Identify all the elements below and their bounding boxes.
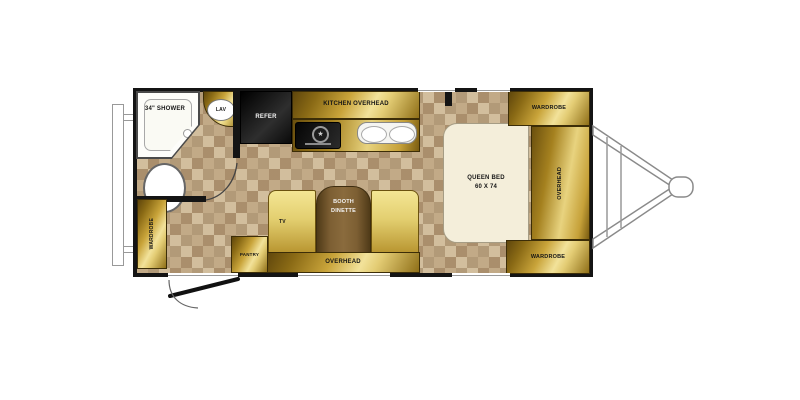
wardrobe-front-top-label: WARDROBE bbox=[532, 105, 566, 112]
hitch-rail-top bbox=[593, 126, 673, 186]
dinette-bench-left: TV bbox=[268, 190, 316, 254]
stove-cooktop: ★ bbox=[295, 122, 341, 149]
wardrobe-rear-label: WARDROBE bbox=[149, 218, 155, 249]
entry-door-panel bbox=[170, 279, 238, 296]
wardrobe-front-top: WARDROBE bbox=[508, 91, 590, 126]
window-bottom-2 bbox=[452, 273, 510, 277]
wardrobe-front-bottom-label: WARDROBE bbox=[531, 254, 565, 261]
lav-sink: LAV bbox=[207, 99, 235, 121]
rear-bumper bbox=[112, 104, 124, 266]
overhead-front: OVERHEAD bbox=[531, 126, 590, 240]
wardrobe-front-bottom: WARDROBE bbox=[506, 240, 590, 274]
overhead-dinette-label: OVERHEAD bbox=[325, 259, 361, 267]
window-top-2 bbox=[477, 88, 510, 92]
kitchen-overhead-cabinet: KITCHEN OVERHEAD bbox=[292, 91, 420, 119]
dinette-label-2: DINETTE bbox=[331, 208, 356, 215]
trailer-body: 34" SHOWER LAV WARDROBE REFER KITCHEN OV… bbox=[133, 88, 593, 277]
shower-stall: 34" SHOWER bbox=[136, 91, 200, 159]
dinette-table: BOOTH DINETTE bbox=[316, 186, 371, 254]
tv-label: TV bbox=[279, 219, 286, 225]
hitch-rail-bottom bbox=[593, 188, 673, 248]
overhead-dinette: OVERHEAD bbox=[266, 252, 420, 273]
entry-door-opening bbox=[168, 273, 238, 277]
window-top-1 bbox=[418, 88, 455, 92]
kitchen-sink bbox=[357, 122, 417, 144]
queen-bed-label: QUEEN BED bbox=[467, 175, 504, 183]
floorplan-canvas: 34" SHOWER LAV WARDROBE REFER KITCHEN OV… bbox=[0, 0, 800, 400]
refrigerator: REFER bbox=[240, 91, 292, 144]
dinette-bench-right bbox=[371, 190, 419, 254]
hitch-a-frame bbox=[591, 124, 696, 250]
refer-label: REFER bbox=[255, 114, 276, 122]
window-bottom-1 bbox=[298, 273, 390, 277]
dinette-label-1: BOOTH bbox=[333, 199, 354, 206]
lav-label: LAV bbox=[216, 107, 226, 113]
kitchen-overhead-label: KITCHEN OVERHEAD bbox=[323, 101, 389, 109]
pantry-label: PANTRY bbox=[240, 252, 259, 258]
shower-pan-outline: 34" SHOWER bbox=[138, 93, 198, 157]
stove-emblem-text bbox=[305, 143, 331, 145]
entry-door-swing-arc bbox=[169, 280, 198, 308]
queen-bed-size: 60 X 74 bbox=[475, 184, 497, 192]
stove-brand-emblem-icon: ★ bbox=[312, 126, 329, 143]
sink-bowl-left bbox=[361, 126, 387, 143]
wardrobe-rear: WARDROBE bbox=[137, 199, 167, 269]
partition-wall-stub bbox=[445, 91, 452, 106]
queen-bed: QUEEN BED 60 X 74 bbox=[443, 123, 529, 243]
bathroom-wall-vertical bbox=[233, 91, 240, 158]
hitch-coupler bbox=[669, 177, 693, 197]
shower-drain bbox=[183, 129, 192, 138]
sink-bowl-right bbox=[389, 126, 415, 143]
overhead-front-label: OVERHEAD bbox=[557, 167, 564, 200]
shower-label: 34" SHOWER bbox=[140, 106, 190, 114]
pantry: PANTRY bbox=[231, 236, 268, 273]
